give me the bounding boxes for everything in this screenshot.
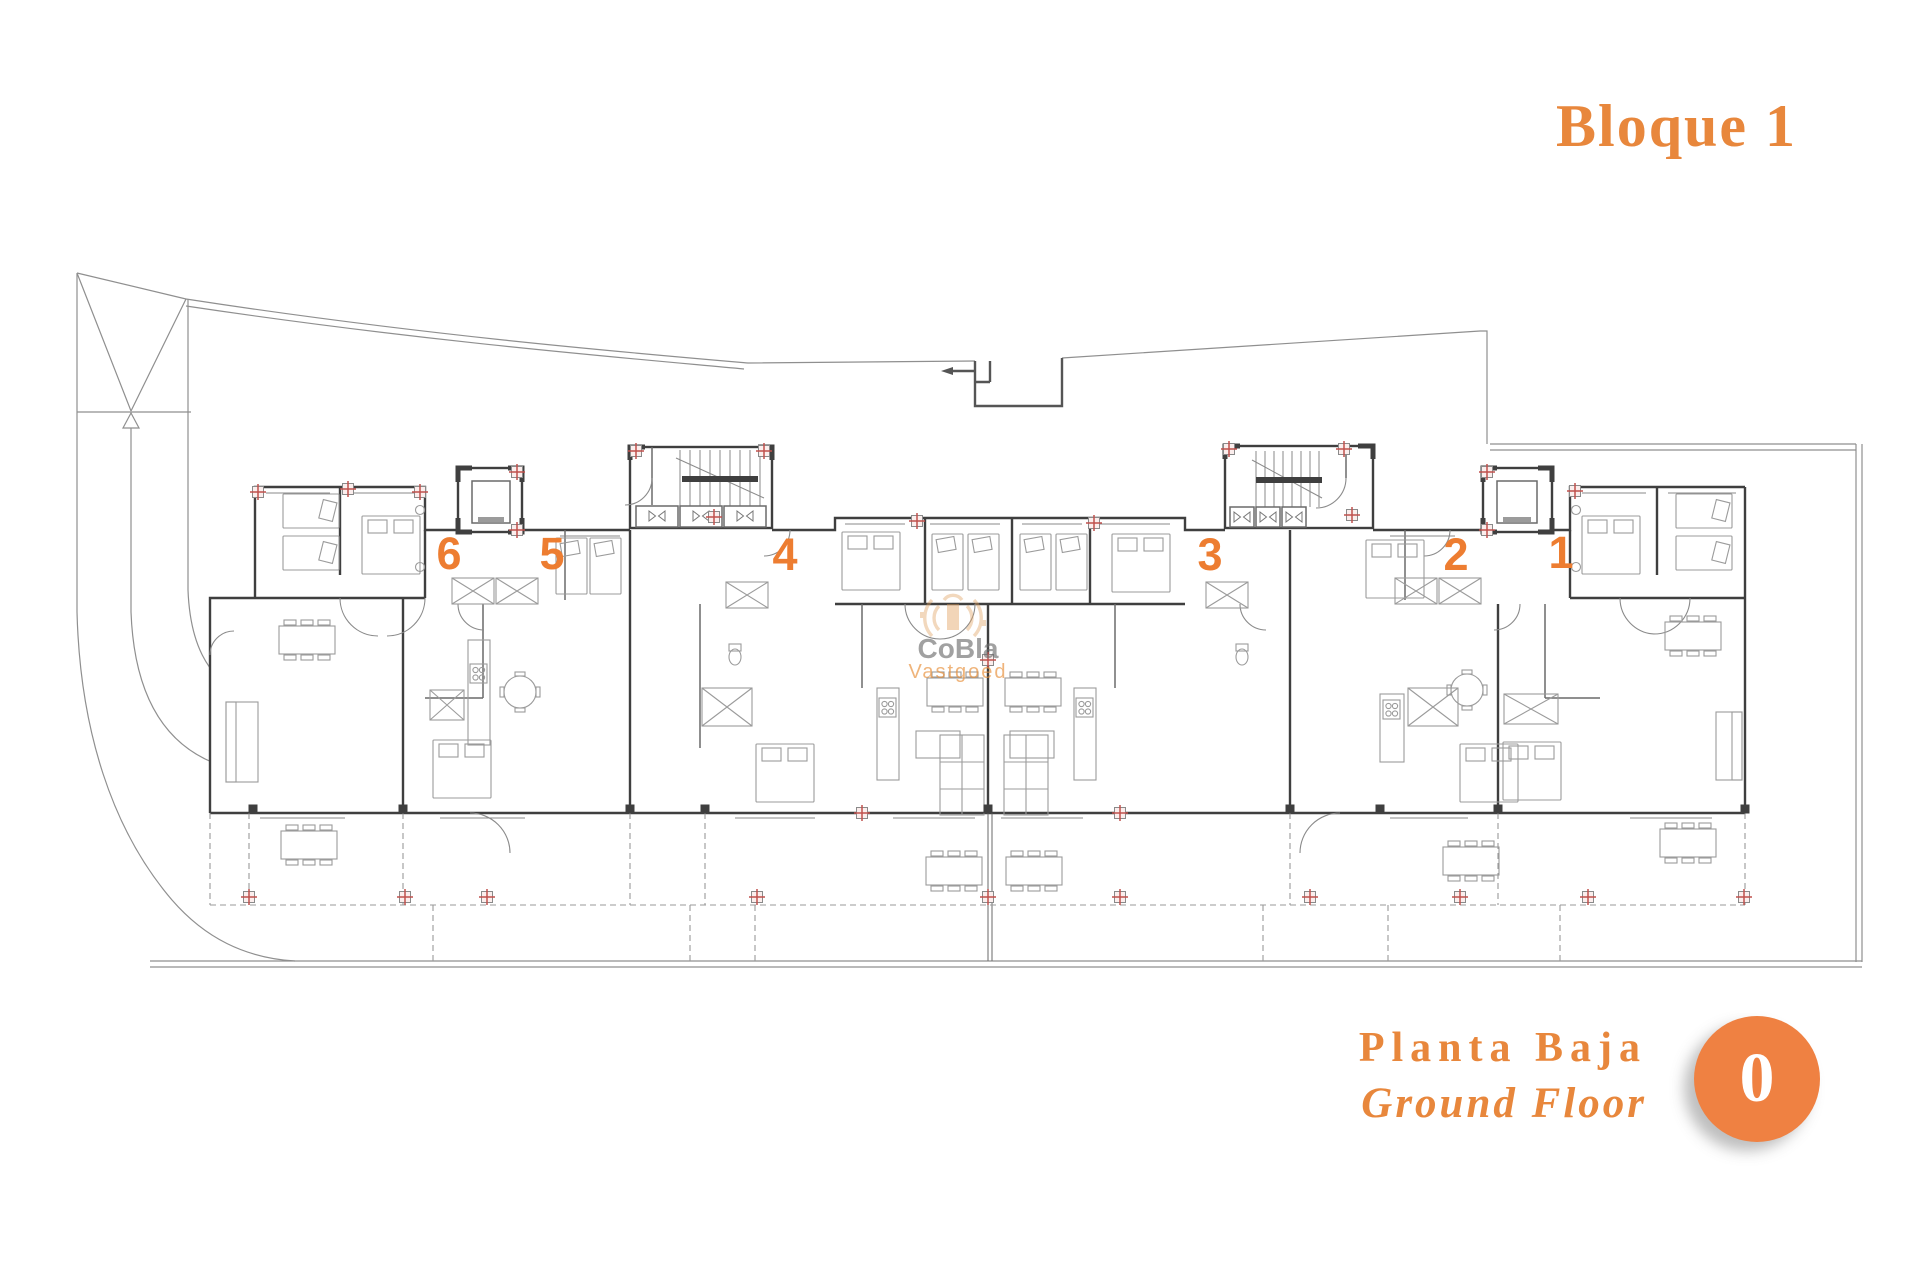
watermark-name: CoBla	[918, 633, 999, 664]
watermark-subtitle: Vastgoed	[908, 661, 1007, 683]
floor-legend: Planta Baja Ground Floor	[1359, 1020, 1647, 1132]
unit-number-1: 1	[1548, 527, 1573, 579]
floor-number: 0	[1740, 1044, 1775, 1114]
unit-number-3: 3	[1197, 529, 1222, 581]
floor-number-badge: 0	[1694, 1016, 1820, 1142]
disclaimer: Imagen informativa sin escala / Informat…	[300, 1212, 1420, 1280]
floor-name-spanish: Planta Baja	[1359, 1020, 1647, 1076]
site-entrance-notch	[941, 358, 1062, 406]
unit-number-4: 4	[772, 529, 797, 581]
unit-number-2: 2	[1443, 529, 1468, 581]
unit-number-5: 5	[539, 528, 564, 580]
floor-name-english: Ground Floor	[1359, 1076, 1647, 1132]
floor-plan-sheet: CoBla Vastgoed Bloque 1 6 5 4 3 2 1 Plan…	[0, 0, 1920, 1280]
unit-number-6: 6	[436, 528, 461, 580]
block-title: Bloque 1	[1556, 92, 1866, 161]
